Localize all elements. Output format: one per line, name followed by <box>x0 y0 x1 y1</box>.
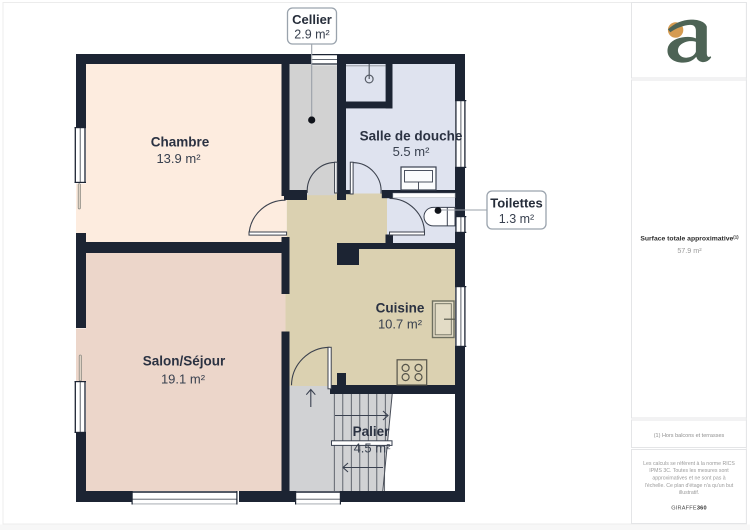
svg-text:Chambre: Chambre <box>151 135 210 150</box>
svg-text:IPMS 3C. Toutes les mesures so: IPMS 3C. Toutes les mesures sont <box>649 468 729 474</box>
svg-text:GIRAFFE360: GIRAFFE360 <box>671 505 707 511</box>
svg-text:19.1 m²: 19.1 m² <box>161 372 206 387</box>
svg-text:approximatives et ne sont pas: approximatives et ne sont pas à <box>652 476 725 482</box>
svg-text:13.9 m²: 13.9 m² <box>156 151 201 166</box>
svg-text:Surface totale approximative(1: Surface totale approximative(1) <box>640 234 739 242</box>
svg-text:1.3 m²: 1.3 m² <box>499 212 534 226</box>
svg-text:illustratif.: illustratif. <box>679 490 699 496</box>
svg-text:l'échelle. Ce plan d'étage n'a: l'échelle. Ce plan d'étage n'a qu'un but <box>645 483 734 489</box>
svg-text:Salle de douche: Salle de douche <box>360 129 463 144</box>
svg-text:Cellier: Cellier <box>292 12 332 27</box>
svg-text:10.7 m²: 10.7 m² <box>378 317 423 332</box>
svg-text:Cuisine: Cuisine <box>376 301 425 316</box>
svg-text:5.5 m²: 5.5 m² <box>393 144 431 159</box>
svg-text:57.9 m²: 57.9 m² <box>677 246 702 255</box>
svg-text:Palier: Palier <box>353 424 391 439</box>
svg-text:(1) Hors balcons et terrasses: (1) Hors balcons et terrasses <box>654 433 725 439</box>
svg-text:Salon/Séjour: Salon/Séjour <box>143 354 226 369</box>
svg-text:4.5 m²: 4.5 m² <box>354 441 392 456</box>
svg-text:Toilettes: Toilettes <box>490 196 543 211</box>
svg-text:Les calculs se réfèrent à la n: Les calculs se réfèrent à la norme RICS <box>643 461 735 467</box>
svg-text:2.9 m²: 2.9 m² <box>294 28 329 42</box>
